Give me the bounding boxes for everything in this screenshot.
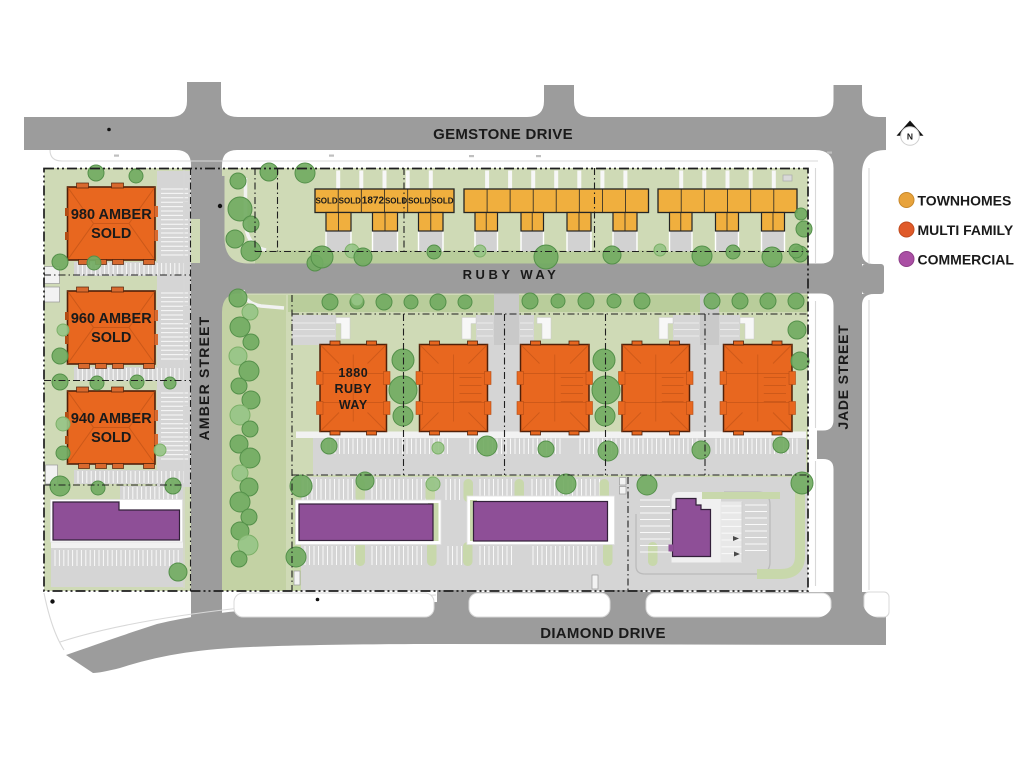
svg-text:SOLD: SOLD <box>431 197 453 206</box>
svg-text:AMBER STREET: AMBER STREET <box>196 316 212 441</box>
svg-text:GEMSTONE DRIVE: GEMSTONE DRIVE <box>433 126 573 143</box>
svg-text:SOLD: SOLD <box>91 226 131 242</box>
svg-text:SOLD: SOLD <box>339 197 361 206</box>
svg-text:980 AMBER: 980 AMBER <box>71 207 152 223</box>
svg-text:MULTI FAMILY: MULTI FAMILY <box>918 222 1014 238</box>
svg-text:COMMERCIAL: COMMERCIAL <box>918 252 1015 268</box>
svg-text:TOWNHOMES: TOWNHOMES <box>918 193 1012 209</box>
svg-text:N: N <box>907 132 913 142</box>
svg-text:JADE STREET: JADE STREET <box>835 324 851 429</box>
svg-text:RUBY WAY: RUBY WAY <box>463 267 560 282</box>
svg-text:WAY: WAY <box>339 398 368 412</box>
svg-text:SOLD: SOLD <box>91 330 131 346</box>
svg-text:940 AMBER: 940 AMBER <box>71 411 152 427</box>
svg-text:1872: 1872 <box>362 196 385 207</box>
svg-text:SOLD: SOLD <box>315 197 337 206</box>
svg-text:SOLD: SOLD <box>91 430 131 446</box>
svg-text:RUBY: RUBY <box>335 382 373 396</box>
svg-text:1880: 1880 <box>338 366 368 380</box>
svg-text:SOLD: SOLD <box>408 197 430 206</box>
svg-text:DIAMOND DRIVE: DIAMOND DRIVE <box>540 625 666 642</box>
svg-text:960 AMBER: 960 AMBER <box>71 311 152 327</box>
